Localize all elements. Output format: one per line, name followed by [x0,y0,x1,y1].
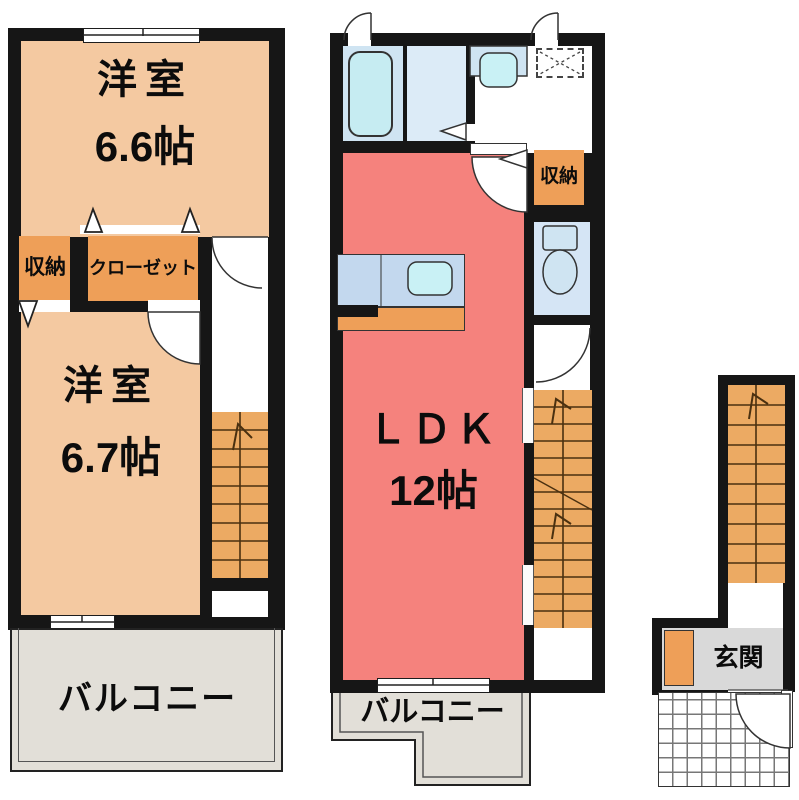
landing-left-building [212,591,268,617]
stair-rail-lower [522,565,534,625]
storage-left-opening [19,300,70,312]
closet-door-opening [80,225,200,234]
stairs-landing [728,583,783,628]
label-room67-name: 洋室 [21,366,201,406]
stairs-left-building [212,412,268,578]
label-ldk-size: 12帖 [343,470,524,512]
stairs-middle-building [534,390,592,628]
label-room67-size: 6.7帖 [21,437,201,479]
entrance-wall-left [652,618,662,695]
washing-machine-pad [536,48,584,78]
label-entrance: 玄関 [696,646,781,671]
hall-toilet [534,325,590,390]
label-room66-name: 洋室 [21,60,269,100]
entrance-porch-tiles [658,692,790,787]
label-balcony-main: バルコニー [340,698,525,727]
floorplan: 洋室 6.6帖 収納 クローゼット 洋室 6.7帖 バルコニー ＬＤＫ 12帖 … [0,0,799,800]
stairs-entrance [728,385,785,583]
washroom [407,46,466,141]
room67-door-opening [148,300,200,312]
label-closet: クローゼット [86,259,200,277]
top-door-gap-2 [535,33,558,46]
top-door-gap-1 [348,33,371,46]
ldk-door-leaf [470,143,527,155]
bathroom [343,46,403,141]
kitchen-counter [337,254,465,307]
hall-left-building [212,237,268,412]
toilet-room [534,222,590,315]
understair-area [534,628,592,680]
window-ldk [377,678,490,693]
label-balcony-left: バルコニー [30,682,265,716]
label-storage-left: 収納 [19,257,71,278]
entrance-wall-top [652,618,728,628]
window-room66 [83,28,200,43]
washroom-door-opening [466,124,475,141]
label-storage-right: 収納 [534,167,584,186]
shoe-cabinet [664,630,694,686]
balcony-main-bottom [415,740,530,785]
entrance-door-leaf [781,690,793,748]
kitchen-wall-stub [330,305,378,317]
entrance-wall-right [783,615,795,692]
label-room66-size: 6.6帖 [21,126,269,168]
label-ldk-name: ＬＤＫ [343,410,524,450]
